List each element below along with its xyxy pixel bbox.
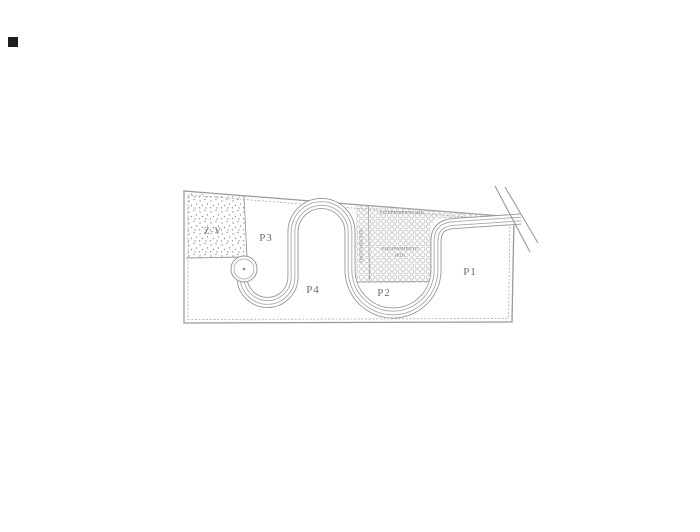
equipment-label-top: EQUIPAMIENTO (ED): [380, 210, 424, 215]
parcel-label-p3: P3: [259, 232, 273, 244]
equipment-label-middle-line1: EQUIPAMIENTO: [382, 246, 419, 251]
scan-artifact-square: [8, 37, 18, 47]
equipment-bottom-line: [355, 282, 431, 283]
site-plan-drawing: Z-V P3 P4 P2 P1 EQUIPAMIENTO (ED) EQUIPA…: [0, 0, 700, 532]
cul-de-sac-center-dot: [243, 268, 246, 271]
equipment-label-vertical: EQUIPAMIENTO: [359, 229, 364, 263]
equipment-label-middle-line2: (ED): [395, 253, 405, 258]
parcel-label-p1: P1: [463, 266, 477, 278]
zone-zv-label: Z-V: [204, 226, 222, 236]
cul-de-sac: [231, 256, 257, 282]
scanned-plan-page: Z-V P3 P4 P2 P1 EQUIPAMIENTO (ED) EQUIPA…: [0, 0, 700, 532]
parcel-label-p2: P2: [377, 287, 391, 299]
parcel-label-p4: P4: [306, 284, 320, 296]
